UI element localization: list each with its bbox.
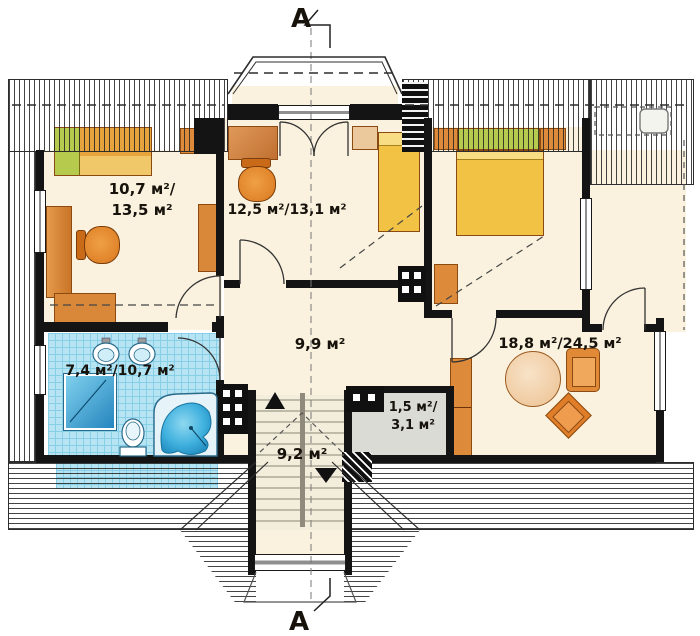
office-chair-center-room xyxy=(236,158,276,200)
wardrobe-left-room xyxy=(198,204,218,272)
wall-segment xyxy=(194,118,224,154)
wall-segment xyxy=(36,395,44,462)
floor-plan: A A 10,7 м²/ 13,5 м² 12,5 м²/13,1 м² 9,9… xyxy=(0,0,700,636)
roof-hatch-left-strip xyxy=(8,151,36,462)
shower-tray xyxy=(64,374,116,430)
room-label-bedroom-left: 10,7 м²/ 13,5 м² xyxy=(92,179,192,221)
vent-hole xyxy=(368,394,375,401)
shelf-divider xyxy=(451,407,471,408)
chair-seat xyxy=(238,166,276,202)
wall-segment xyxy=(656,411,664,462)
dresser-bottom-left-room xyxy=(54,293,116,325)
wall-segment xyxy=(446,386,454,462)
wall-segment xyxy=(496,310,590,318)
wall-segment xyxy=(582,118,590,198)
window-left-room xyxy=(34,190,46,253)
dormer-bottom-outline xyxy=(244,572,356,602)
vent-block-stairs xyxy=(342,452,372,482)
balcony-door-frame-top-dormer xyxy=(278,105,350,120)
roof-hatch-bottom-right xyxy=(344,462,694,530)
section-marker-top: A xyxy=(286,1,316,37)
office-chair-left-room xyxy=(76,224,118,264)
vent-hole xyxy=(402,272,409,279)
wall-segment xyxy=(344,455,656,463)
wall-stairs-left xyxy=(248,390,256,575)
room-label-hall: 9,9 м² xyxy=(288,334,352,355)
wall-segment xyxy=(582,290,590,332)
dormer-roof-slope-right xyxy=(344,530,420,602)
room-label-closet: 1,5 м²/ 3,1 м² xyxy=(380,399,446,435)
roof-hatch-bottom-left xyxy=(8,462,256,530)
vent-hole xyxy=(414,286,421,293)
area-line: 13,5 м² xyxy=(92,200,192,221)
wall-dormer-top-left xyxy=(228,104,278,120)
vent-block-closet xyxy=(346,386,384,412)
wall-segment xyxy=(656,318,664,331)
vent-hole xyxy=(402,286,409,293)
bed-blanket-edge xyxy=(457,151,543,160)
desk-left-room xyxy=(46,206,72,298)
window-bathroom xyxy=(34,345,46,395)
wall-segment xyxy=(216,316,224,338)
section-marker-bottom: A xyxy=(284,604,314,636)
window-bedroom-right xyxy=(580,198,592,290)
vent-hole xyxy=(223,418,230,425)
vent-hole xyxy=(414,272,421,279)
dormer-roof-slope-left xyxy=(180,530,256,602)
window-dormer-bottom xyxy=(254,554,346,571)
vent-hole xyxy=(235,418,242,425)
roof-hatch-top-corner xyxy=(590,79,694,185)
armchair-seat xyxy=(572,357,596,387)
wall-dormer-top-right xyxy=(350,104,402,120)
section-leader-bottom xyxy=(314,578,330,611)
wall-segment xyxy=(424,310,452,318)
round-table xyxy=(505,351,561,407)
vent-hole xyxy=(235,404,242,411)
wall-segment xyxy=(36,455,256,463)
vent-hole xyxy=(223,404,230,411)
window-living-room xyxy=(654,331,666,411)
vent-hole xyxy=(223,390,230,397)
vent-hole xyxy=(235,390,242,397)
area-line: 3,1 м² xyxy=(380,417,446,435)
vent-block-bathroom xyxy=(218,384,248,434)
chair-seat xyxy=(84,226,120,264)
vent-hole xyxy=(353,394,360,401)
room-label-bathroom: 7,4 м²/10,7 м² xyxy=(54,362,186,382)
vent-block-hall xyxy=(398,266,426,302)
area-line: 1,5 м²/ xyxy=(380,399,446,417)
bed-right xyxy=(456,150,544,236)
wall-stairs-right xyxy=(344,390,352,575)
armchair-living xyxy=(566,348,600,392)
dresser-right-bedroom xyxy=(434,264,458,304)
room-label-bedroom-center: 12,5 м²/13,1 м² xyxy=(222,201,352,221)
room-label-stairs: 9,2 м² xyxy=(266,444,338,465)
desk-center-room xyxy=(228,126,278,160)
wall-segment xyxy=(36,150,44,190)
room-label-living: 18,8 м²/24,5 м² xyxy=(485,334,635,354)
shelf-center-room xyxy=(352,126,378,150)
wall-segment xyxy=(224,280,240,288)
wall-segment xyxy=(36,322,168,332)
wall-segment xyxy=(590,324,602,332)
area-line: 10,7 м²/ xyxy=(92,179,192,200)
